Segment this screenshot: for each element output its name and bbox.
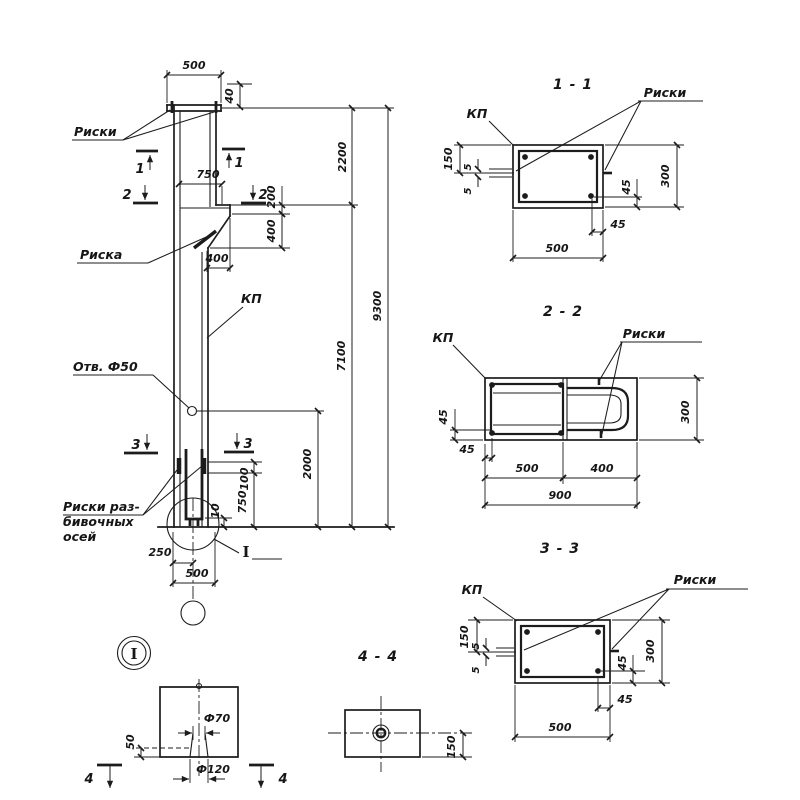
- detail-ref-label: I: [242, 543, 249, 561]
- dim-9300: 9300: [371, 290, 384, 321]
- section-3-3: 3 - 3 КП Риски 150 5 5 45: [458, 541, 748, 742]
- dim-150: 150: [458, 625, 471, 648]
- marker-2-right: 2: [258, 188, 267, 203]
- marker-3-left: 3: [131, 438, 140, 453]
- section-3-3-riska-marks: [493, 648, 619, 656]
- dim-300: 300: [659, 164, 672, 187]
- dim-400: 400: [590, 462, 614, 475]
- marker-2-left: 2: [122, 188, 131, 203]
- dim-500-top: 500: [183, 59, 206, 72]
- section-1-1-riski-label: Риски: [644, 85, 687, 100]
- dim-250: 250: [149, 546, 172, 559]
- dim-50: 50: [124, 734, 137, 750]
- section-4-4-title: 4 - 4: [357, 649, 398, 665]
- section-2-2-kp-label: КП: [433, 330, 454, 345]
- section-1-1-riska-marks: [486, 169, 612, 177]
- dim-500: 500: [516, 462, 539, 475]
- section-2-2: 2 - 2 КП Риски 45 45: [433, 304, 704, 509]
- dim-f120: Ф120: [196, 763, 230, 776]
- elevation-labels: Риски Риска КП Отв. Ф50 Риски раз- бивоч…: [63, 110, 282, 561]
- hole-label: Отв. Ф50: [73, 359, 138, 374]
- section-3-3-riski-label: Риски: [674, 572, 717, 587]
- dim-150: 150: [445, 735, 458, 758]
- detail-i-view: I Ф70 50 Ф120 4 4: [83, 637, 287, 789]
- dim-2200: 2200: [336, 141, 349, 172]
- dim-45-right: 45: [620, 179, 633, 196]
- marker-4-right: 4: [277, 772, 287, 787]
- dim-5a: 5: [471, 642, 482, 649]
- section-4-4-dimensions: 150: [422, 733, 472, 758]
- section-1-1-title: 1 - 1: [553, 77, 593, 93]
- dim-100: 100: [238, 467, 251, 490]
- dim-45-bottom: 45: [458, 443, 475, 456]
- column-outline: [167, 101, 230, 527]
- dim-400-v: 400: [265, 219, 278, 243]
- dim-10: 10: [209, 503, 222, 519]
- section-1-1-kp-label: КП: [467, 106, 488, 121]
- dim-750-base: 750: [236, 490, 249, 513]
- dim-150: 150: [442, 147, 455, 170]
- axes-label-line2: бивочных: [63, 514, 135, 529]
- dim-45-left: 45: [437, 409, 450, 426]
- dim-5b: 5: [471, 666, 482, 673]
- section-2-2-title: 2 - 2: [543, 304, 583, 320]
- section-3-3-title: 3 - 3: [540, 541, 580, 557]
- dim-f70: Ф70: [204, 712, 231, 725]
- column-base: [158, 407, 394, 626]
- riski-label: Риски: [74, 124, 117, 139]
- section-1-1: 1 - 1 КП Риски 150 5 5 45: [442, 77, 703, 262]
- dim-40: 40: [223, 88, 236, 105]
- marker-4-left: 4: [83, 772, 93, 787]
- marker-1-right: 1: [234, 156, 243, 171]
- drawing-sheet: 500 40 750 200 400 400 220: [0, 0, 800, 800]
- dim-7100: 7100: [335, 340, 348, 371]
- marker-4-pair: 4 4: [83, 765, 287, 788]
- dim-750-corbel: 750: [197, 168, 220, 181]
- dim-45-right: 45: [616, 655, 629, 672]
- dim-900: 900: [549, 489, 572, 502]
- axis-bubble: [181, 601, 205, 625]
- marker-1-left: 1: [135, 162, 144, 177]
- dim-2000: 2000: [301, 448, 314, 479]
- dim-300: 300: [679, 400, 692, 423]
- kp-label: КП: [241, 291, 262, 306]
- dim-500-base: 500: [186, 567, 209, 580]
- column-drawing: 500 40 750 200 400 400 220: [0, 0, 800, 800]
- section-2-2-riski-label: Риски: [623, 326, 666, 341]
- section-1-1-dimensions: 150 5 5 45 300 45 500: [442, 145, 684, 262]
- dim-500: 500: [549, 721, 572, 734]
- detail-title: I: [130, 645, 137, 663]
- riska-label: Риска: [80, 247, 122, 262]
- marker-3-right: 3: [243, 437, 252, 452]
- dim-5b: 5: [463, 187, 474, 194]
- section-3-3-kp-label: КП: [462, 582, 483, 597]
- dim-500: 500: [546, 242, 569, 255]
- dim-45-bottom: 45: [609, 218, 626, 231]
- axes-label-line3: осей: [63, 529, 96, 544]
- dim-400-h: 400: [205, 252, 229, 265]
- section-3-3-dimensions: 150 5 5 45 300 45 500: [458, 620, 670, 742]
- dim-45-bottom: 45: [616, 693, 633, 706]
- section-4-4: 4 - 4 150: [328, 649, 472, 772]
- dim-300: 300: [644, 639, 657, 662]
- elevation-view: 500 40 750 200 400 400 220: [63, 59, 394, 625]
- section-2-2-dimensions: 45 45 500 400 900 300: [437, 378, 704, 509]
- axes-label-line1: Риски раз-: [63, 499, 140, 514]
- dim-5a: 5: [463, 163, 474, 170]
